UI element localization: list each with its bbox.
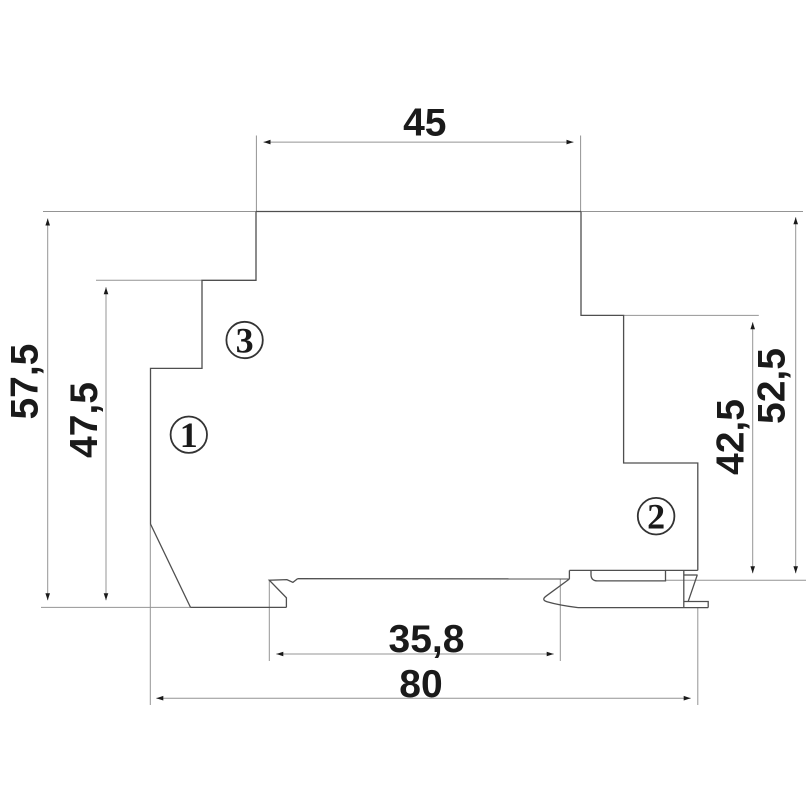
svg-text:42,5: 42,5	[710, 399, 753, 475]
svg-text:35,8: 35,8	[389, 618, 465, 661]
svg-text:52,5: 52,5	[751, 348, 794, 424]
svg-text:57,5: 57,5	[4, 344, 47, 420]
svg-text:3: 3	[236, 320, 254, 360]
svg-text:1: 1	[180, 415, 198, 455]
svg-text:47,5: 47,5	[63, 382, 106, 458]
svg-text:80: 80	[399, 663, 442, 706]
svg-text:45: 45	[403, 102, 446, 145]
svg-text:2: 2	[647, 497, 665, 537]
